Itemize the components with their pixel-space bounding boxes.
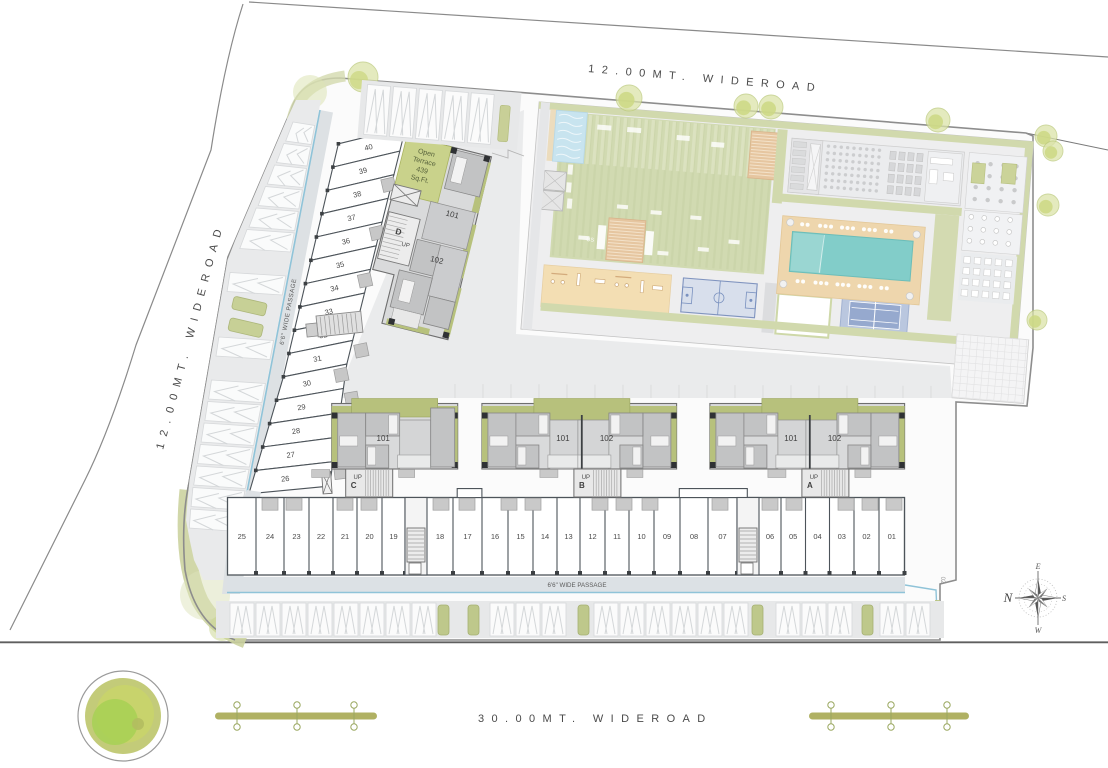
svg-text:N: N	[1003, 590, 1014, 605]
svg-text:A: A	[807, 481, 813, 490]
svg-text:27: 27	[286, 450, 295, 460]
svg-text:29: 29	[297, 402, 307, 412]
svg-text:B: B	[579, 481, 585, 490]
svg-text:30: 30	[302, 378, 312, 388]
svg-text:03: 03	[838, 532, 846, 541]
svg-text:12: 12	[588, 532, 596, 541]
svg-text:02: 02	[939, 577, 945, 584]
svg-text:11: 11	[613, 532, 621, 541]
svg-text:C: C	[351, 481, 357, 490]
svg-text:14: 14	[541, 532, 549, 541]
svg-text:07: 07	[718, 532, 726, 541]
svg-text:01: 01	[888, 532, 896, 541]
svg-text:23: 23	[292, 532, 300, 541]
svg-text:102: 102	[600, 434, 614, 443]
svg-text:21: 21	[341, 532, 349, 541]
svg-text:101: 101	[784, 434, 798, 443]
svg-text:24: 24	[266, 532, 274, 541]
svg-text:06: 06	[766, 532, 774, 541]
svg-text:101: 101	[377, 434, 391, 443]
svg-text:101: 101	[556, 434, 570, 443]
svg-text:6'6" WIDE PASSAGE: 6'6" WIDE PASSAGE	[548, 582, 607, 589]
svg-text:22: 22	[317, 532, 325, 541]
svg-text:02: 02	[862, 532, 870, 541]
svg-text:102: 102	[828, 434, 842, 443]
svg-text:31: 31	[312, 354, 322, 364]
svg-text:13: 13	[564, 532, 572, 541]
svg-text:18: 18	[436, 532, 444, 541]
svg-text:09: 09	[663, 532, 671, 541]
svg-text:04: 04	[813, 532, 821, 541]
svg-text:10: 10	[637, 532, 645, 541]
svg-text:16: 16	[491, 532, 499, 541]
svg-text:28: 28	[291, 426, 301, 436]
svg-text:E: E	[1035, 562, 1041, 571]
svg-text:S: S	[1062, 594, 1066, 603]
svg-text:30.00MT. WIDEROAD: 30.00MT. WIDEROAD	[478, 713, 713, 725]
svg-text:15: 15	[516, 532, 524, 541]
svg-text:08: 08	[690, 532, 698, 541]
svg-text:05: 05	[789, 532, 797, 541]
svg-text:17: 17	[463, 532, 471, 541]
svg-text:25: 25	[238, 532, 246, 541]
svg-text:26: 26	[281, 474, 290, 484]
svg-text:20: 20	[365, 532, 373, 541]
svg-text:19: 19	[389, 532, 397, 541]
